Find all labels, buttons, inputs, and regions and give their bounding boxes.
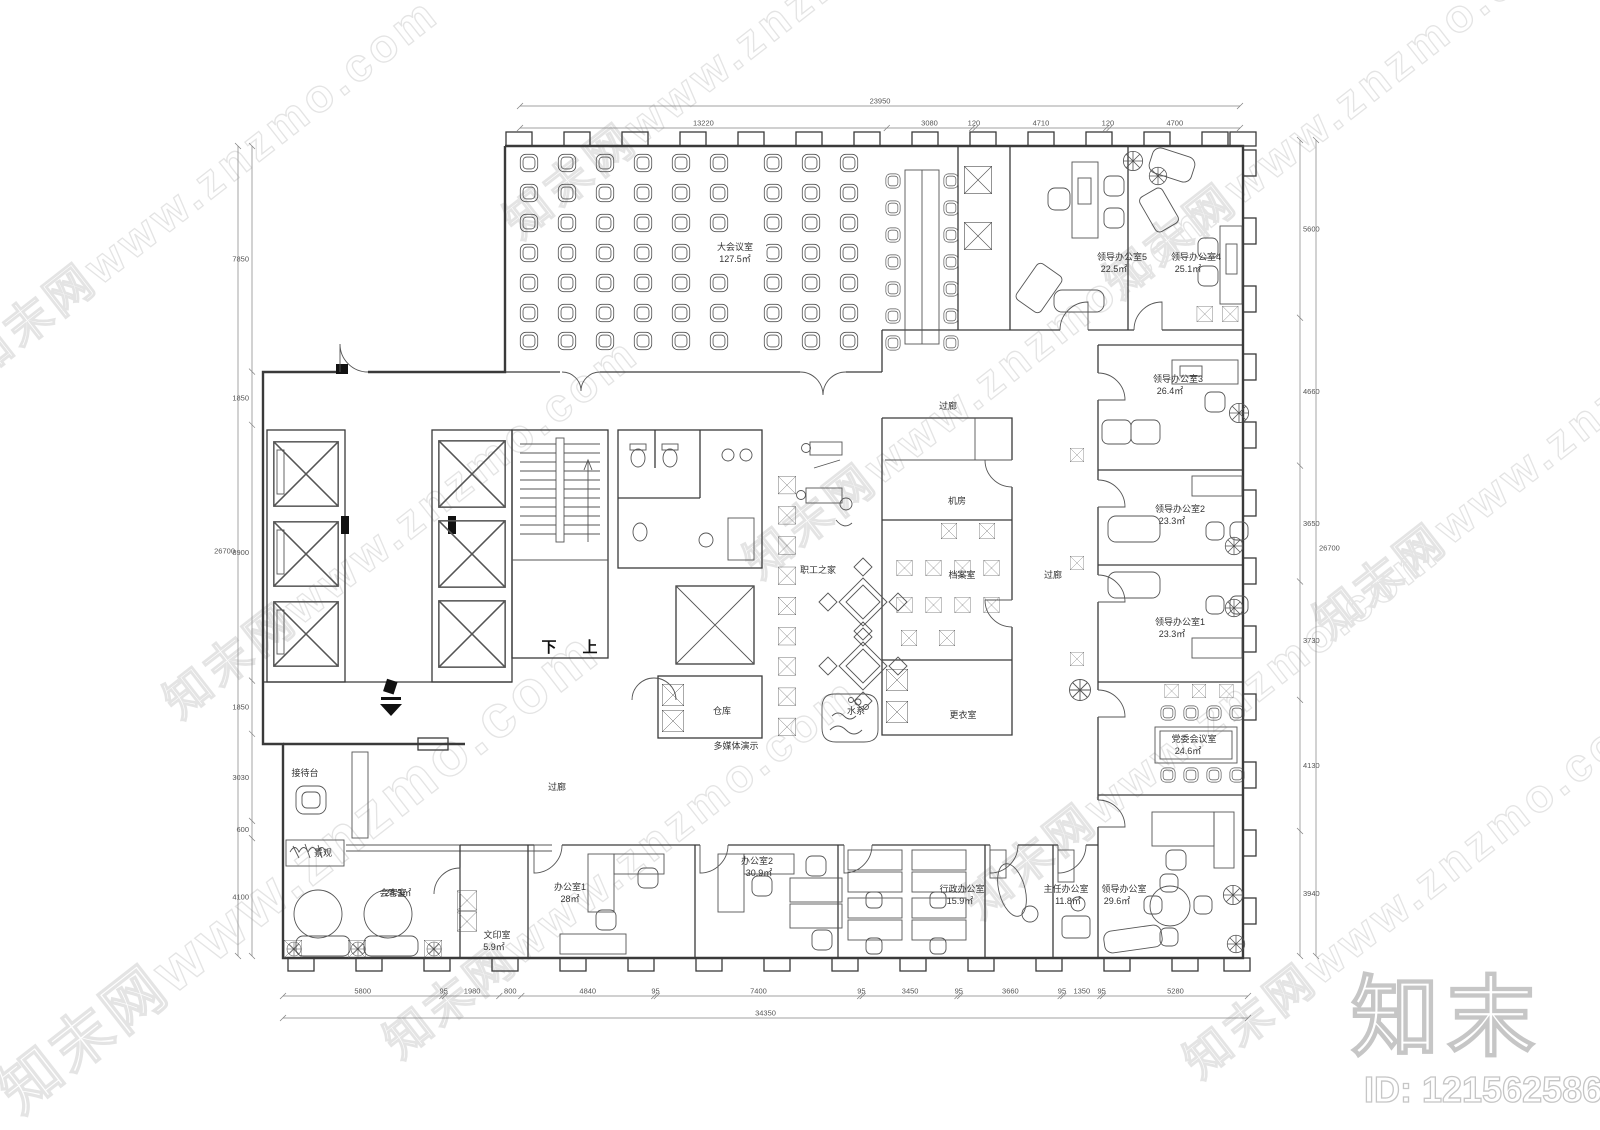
room-label-office5: 领导办公室5 [1097, 251, 1147, 262]
dim-label: 4710 [1033, 119, 1050, 128]
dim-label: 1850 [232, 703, 249, 712]
corridor-label-top: 过廊 [939, 400, 957, 411]
dim-label: 4840 [579, 987, 596, 996]
shelf-xbox [1070, 448, 1084, 462]
shelf-xbox [984, 597, 1000, 613]
chair-icon [634, 274, 651, 291]
column [506, 132, 532, 146]
column [912, 132, 938, 146]
chair-icon [802, 244, 819, 261]
shelf-xbox [886, 701, 907, 722]
shelf-xbox [939, 630, 955, 646]
plant-icon [1149, 167, 1167, 185]
room-label-party: 党委会议室 [1171, 733, 1216, 744]
chair-icon [840, 274, 857, 291]
chair-icon [944, 282, 958, 296]
column [356, 958, 382, 971]
chair-icon [886, 174, 900, 188]
column [1243, 422, 1256, 448]
column [628, 958, 654, 971]
column [1243, 286, 1256, 312]
shelf-xbox [897, 560, 913, 576]
plant-icon [351, 942, 365, 956]
shelf-xbox [886, 669, 907, 690]
chair-icon [596, 214, 613, 231]
watermark-text: 知末网www.znzmo.com [1304, 246, 1600, 648]
watermark-text: 知末网www.znzmo.com [494, 0, 988, 248]
plant-icon [427, 942, 441, 956]
shelf-xbox [662, 710, 683, 731]
plant-icon [1227, 935, 1245, 953]
chair-icon [840, 304, 857, 321]
chair-icon [634, 214, 651, 231]
chair-icon [840, 332, 857, 349]
chair-icon [802, 184, 819, 201]
logo-brand-text: 知末 [1351, 968, 1543, 1067]
dim-label: 7850 [232, 254, 249, 263]
room-label-machine: 机房 [948, 495, 966, 506]
chair-icon [840, 244, 857, 261]
chair-icon [764, 214, 781, 231]
dim-label: 4700 [1166, 119, 1183, 128]
shelf-xbox [901, 630, 917, 646]
chair-icon [596, 274, 613, 291]
dim-label: 13220 [693, 119, 714, 128]
column [1243, 490, 1256, 516]
watermark-layer: 知末网www.znzmo.com知末网www.znzmo.com知末网www.z… [0, 0, 1600, 1125]
chair-icon [558, 332, 575, 349]
chair-icon [520, 244, 537, 261]
corridor-label-east: 过廊 [1044, 569, 1062, 580]
chair-icon [802, 214, 819, 231]
shelf-xbox [778, 658, 796, 676]
room-label-officeB: 办公室2 [741, 855, 773, 866]
dim-label: 120 [968, 119, 981, 128]
chair-icon [634, 332, 651, 349]
logo-id-text: ID: 1215625865 [1364, 1069, 1600, 1110]
column [288, 958, 314, 971]
chair-icon [764, 154, 781, 171]
chair-icon [710, 304, 727, 321]
chair-icon [944, 255, 958, 269]
chair-icon [710, 332, 727, 349]
shelf-xbox [1070, 652, 1084, 666]
column [1086, 132, 1112, 146]
room-area-guest: 24.3㎡ [385, 888, 412, 898]
room-label-storage: 仓库 [713, 705, 731, 716]
chair-icon [558, 304, 575, 321]
chair-icon [634, 304, 651, 321]
room-area-party: 24.6㎡ [1175, 746, 1202, 756]
chair-icon [802, 332, 819, 349]
chair-icon [596, 244, 613, 261]
dim-label: 600 [236, 825, 249, 834]
dim-label: 4100 [232, 893, 249, 902]
column [832, 958, 858, 971]
shelf-xbox [926, 597, 942, 613]
chair-icon [520, 304, 537, 321]
chair-icon [672, 154, 689, 171]
column [1243, 762, 1256, 788]
room-label-director: 主任办公室 [1043, 883, 1088, 894]
shelf-xbox [778, 597, 796, 615]
plant-icon [1223, 885, 1242, 904]
chair-icon [802, 274, 819, 291]
chair-icon [634, 244, 651, 261]
chair-icon [944, 336, 958, 350]
chair-icon [944, 174, 958, 188]
column [1104, 958, 1130, 971]
column [1224, 958, 1250, 971]
dim-label: 26700 [1319, 544, 1340, 553]
shelf-xbox [955, 597, 971, 613]
room-area-print: 5.9㎡ [483, 942, 505, 952]
column [970, 132, 996, 146]
shelf-xbox [1222, 306, 1238, 322]
shelf-xbox [979, 523, 995, 539]
chair-icon [764, 332, 781, 349]
shelf-xbox [1197, 306, 1213, 322]
chair-icon [886, 201, 900, 215]
chair-icon [886, 282, 900, 296]
room-label-print: 文印室 [483, 929, 510, 940]
chair-icon [710, 274, 727, 291]
hydrant-symbol [380, 679, 402, 716]
plant-icon [1225, 599, 1243, 617]
room-label-leader: 领导办公室 [1101, 883, 1146, 894]
column [1202, 132, 1228, 146]
chair-icon [520, 332, 537, 349]
room-label-office2: 领导办公室2 [1155, 503, 1205, 514]
door-arcs-layer [340, 302, 1162, 894]
column [424, 958, 450, 971]
shelf-xbox [778, 476, 796, 494]
watermark-text: 知末网www.znzmo.com [0, 0, 449, 388]
chair-icon [596, 304, 613, 321]
room-label-reception: 接待台 [291, 767, 318, 778]
dim-label: 34350 [755, 1009, 776, 1018]
column [900, 958, 926, 971]
room-label-multimedia: 多媒体演示 [713, 740, 758, 751]
chair-icon [886, 309, 900, 323]
shelf-xbox [926, 560, 942, 576]
room-label-changing: 更衣室 [949, 709, 976, 720]
dim-label: 1350 [1073, 987, 1090, 996]
room-area-leader: 29.6㎡ [1104, 896, 1131, 906]
chair-icon [764, 244, 781, 261]
room-area-director: 11.8㎡ [1055, 896, 1081, 906]
room-label-office4: 领导办公室4 [1171, 251, 1221, 262]
room-label-admin: 行政办公室 [939, 883, 984, 894]
shelf-xbox [984, 560, 1000, 576]
chair-icon [840, 214, 857, 231]
room-area-officeB: 30.9㎡ [746, 868, 773, 878]
chair-icon [558, 274, 575, 291]
chair-icon [672, 214, 689, 231]
room-area-office2: 23.3㎡ [1159, 516, 1186, 526]
dim-label: 4660 [1303, 387, 1320, 396]
shelf-xbox [662, 684, 683, 705]
column [1243, 830, 1256, 856]
chair-icon [886, 255, 900, 269]
exterior-wall [368, 146, 505, 372]
dim-label: 26700 [214, 547, 235, 556]
dim-label: 23950 [870, 97, 891, 106]
floorplan-canvas: 知末网www.znzmo.com知末网www.znzmo.com知末网www.z… [0, 0, 1600, 1130]
column [1172, 958, 1198, 971]
room-area-office1: 23.3㎡ [1159, 629, 1186, 639]
dim-label: 120 [1102, 119, 1115, 128]
column [1028, 132, 1054, 146]
dim-label: 3650 [1303, 519, 1320, 528]
chair-icon [672, 332, 689, 349]
dim-label: 4130 [1303, 761, 1320, 770]
chair-icon [672, 274, 689, 291]
room-area-admin: 15.9㎡ [947, 896, 974, 906]
chair-icon [802, 304, 819, 321]
room-label-conference: 大会议室 [717, 241, 753, 252]
column [1243, 558, 1256, 584]
watermark-text: 知末网www.znzmo.com [0, 616, 612, 1125]
dim-label: 5800 [354, 987, 371, 996]
site-logo: 知末 ID: 1215625865 [1351, 968, 1600, 1110]
plant-icon [1070, 680, 1091, 701]
shelf-xbox [964, 222, 991, 249]
shelf-xbox [778, 688, 796, 706]
chair-icon [886, 336, 900, 350]
plant-icon [1229, 403, 1248, 422]
dim-label: 1850 [232, 394, 249, 403]
shelf-xbox [1165, 684, 1179, 698]
dim-label: 5600 [1303, 224, 1320, 233]
stair-up-label: 上 [582, 639, 597, 656]
dim-label: 3080 [921, 119, 938, 128]
dim-label: 3450 [902, 987, 919, 996]
room-label-office3: 领导办公室3 [1153, 373, 1203, 384]
chair-icon [944, 228, 958, 242]
room-label-office1: 领导办公室1 [1155, 616, 1205, 627]
chair-icon [802, 154, 819, 171]
column [738, 132, 764, 146]
chair-icon [1207, 768, 1221, 782]
shelf-xbox [439, 601, 505, 667]
chair-icon [634, 184, 651, 201]
room-area-office4: 25.1㎡ [1175, 264, 1202, 274]
room-label-water: 水系 [847, 705, 865, 716]
chair-icon [710, 214, 727, 231]
chair-icon [710, 184, 727, 201]
plant-icon [1225, 537, 1243, 555]
chair-icon [520, 274, 537, 291]
column [1036, 958, 1062, 971]
room-label-officeA: 办公室1 [554, 881, 586, 892]
chair-icon [944, 309, 958, 323]
column [968, 958, 994, 971]
corridor-label-south: 过廊 [548, 781, 566, 792]
column [854, 132, 880, 146]
room-area-office3: 26.4㎡ [1157, 386, 1184, 396]
stair-down-label: 下 [541, 639, 556, 656]
chair-icon [840, 184, 857, 201]
shelf-xbox [274, 442, 338, 506]
column [680, 132, 706, 146]
room-label-landscape: 景观 [314, 848, 332, 858]
chair-icon [764, 274, 781, 291]
dim-label: 3660 [1002, 987, 1019, 996]
chair-icon [672, 304, 689, 321]
dim-label: 5280 [1167, 987, 1184, 996]
column [1243, 626, 1256, 652]
room-area-conference: 127.5㎡ [719, 254, 751, 264]
chair-icon [558, 244, 575, 261]
chair-icon [710, 154, 727, 171]
column [764, 958, 790, 971]
chair-icon [764, 184, 781, 201]
chair-icon [672, 244, 689, 261]
shelf-xbox [778, 627, 796, 645]
column [560, 958, 586, 971]
column [696, 958, 722, 971]
chair-icon [764, 304, 781, 321]
chair-icon [886, 228, 900, 242]
chair-icon [672, 184, 689, 201]
chair-icon [840, 154, 857, 171]
shelf-xbox [1070, 556, 1084, 570]
room-label-archive: 档案室 [948, 569, 975, 580]
watermark-text: 知末网www.znzmo.com [1094, 0, 1588, 308]
chair-icon [520, 154, 537, 171]
dim-label: 3730 [1303, 636, 1320, 645]
dim-label: 3030 [232, 773, 249, 782]
column [1243, 218, 1256, 244]
column [1144, 132, 1170, 146]
column [796, 132, 822, 146]
dim-label: 1980 [464, 987, 481, 996]
column [1243, 354, 1256, 380]
plant-icon [287, 942, 301, 956]
room-area-officeA: 28㎡ [560, 894, 579, 904]
dim-label: 7400 [750, 987, 767, 996]
shelf-xbox [964, 166, 991, 193]
dim-label: 3940 [1303, 889, 1320, 898]
room-label-staff-home: 职工之家 [800, 564, 836, 575]
shelf-xbox [941, 523, 957, 539]
shelf-xbox [439, 521, 505, 587]
dim-label: 800 [504, 987, 517, 996]
column [1243, 898, 1256, 924]
room-area-office5: 22.5㎡ [1101, 264, 1128, 274]
plant-icon [1123, 151, 1142, 170]
chair-icon [944, 201, 958, 215]
